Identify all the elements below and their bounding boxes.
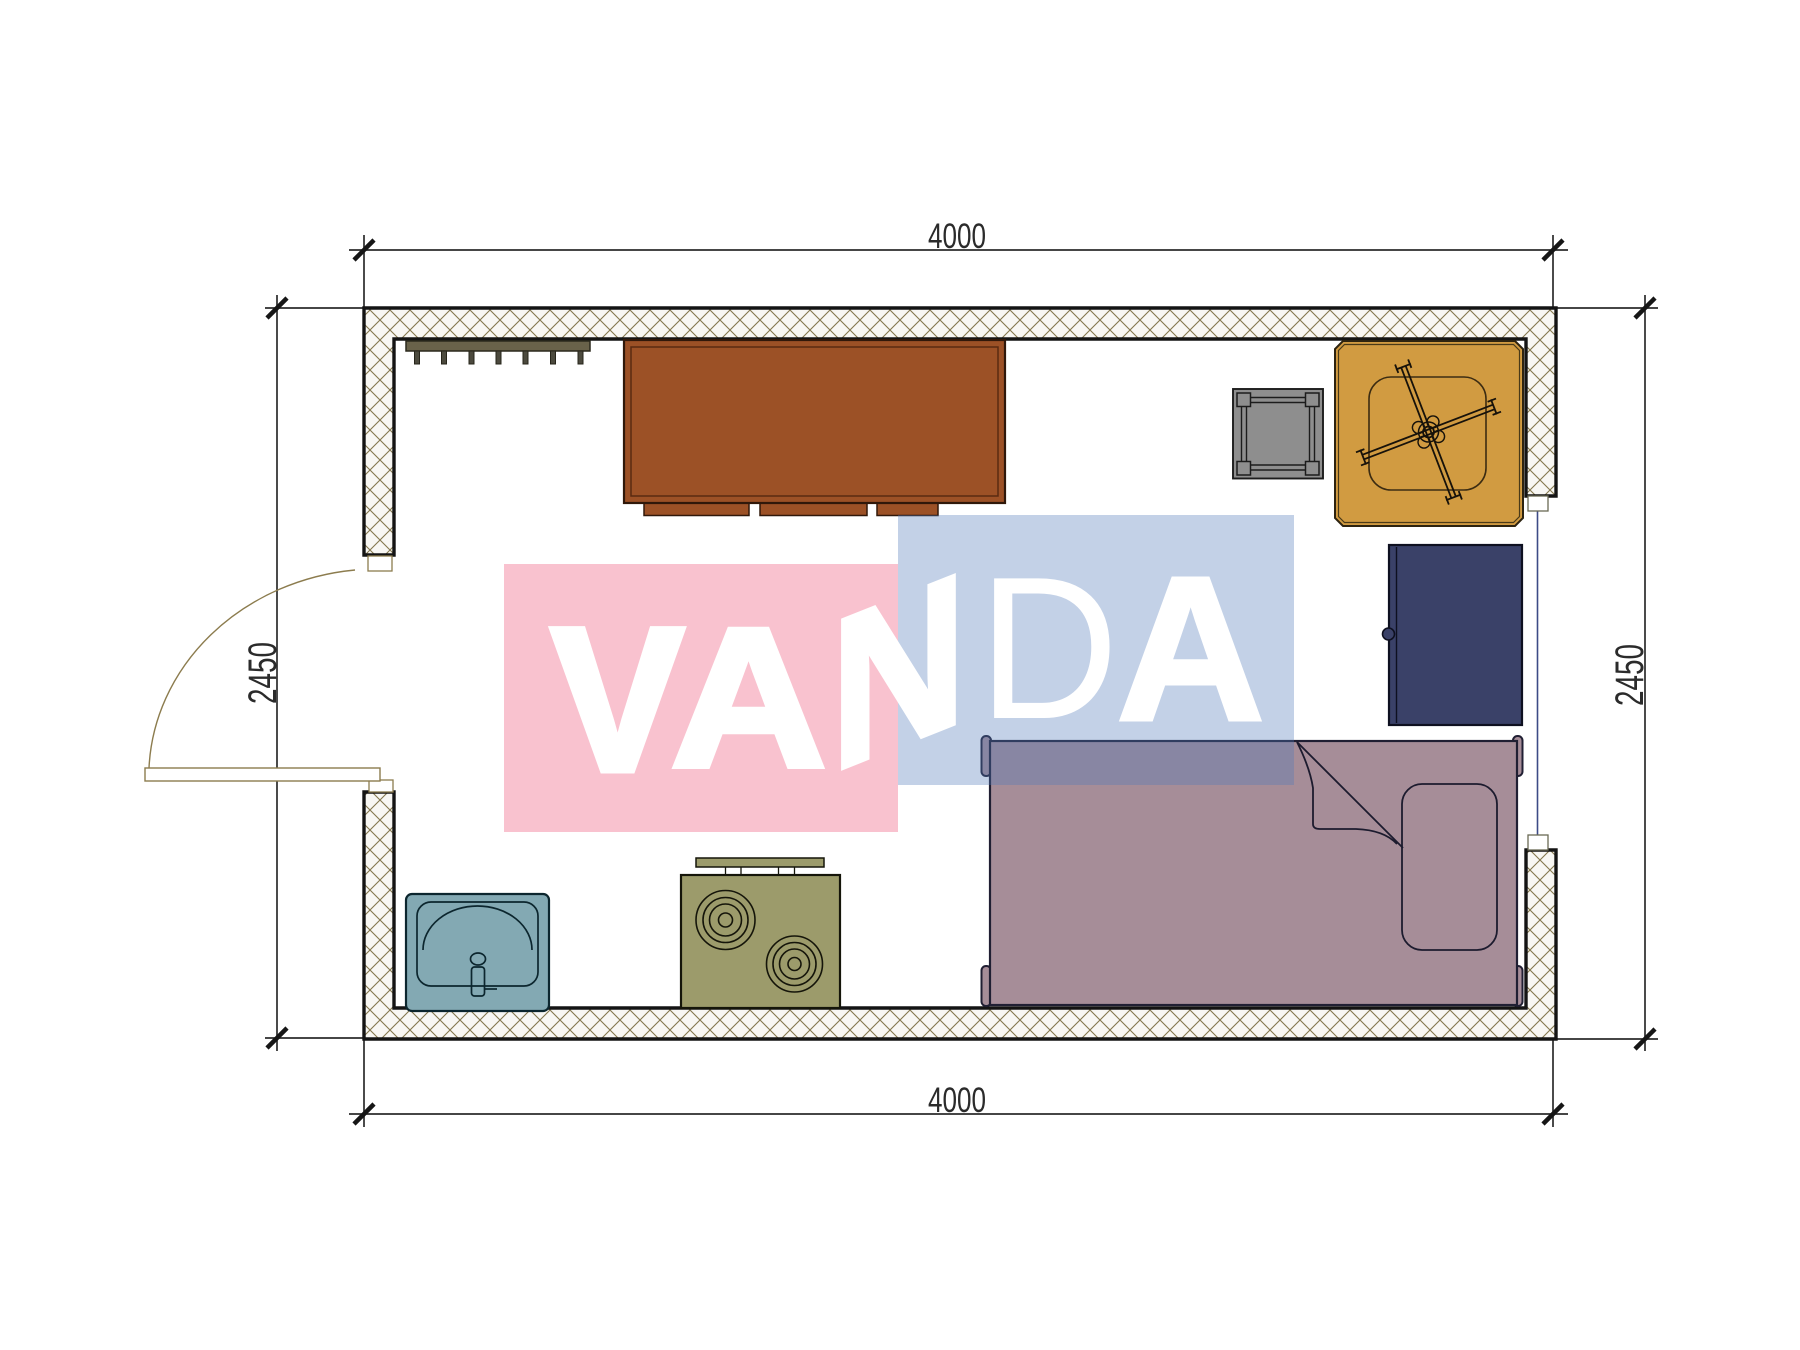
- svg-text:V: V: [551, 585, 683, 813]
- svg-text:4000: 4000: [928, 1081, 986, 1120]
- svg-text:2450: 2450: [241, 642, 285, 704]
- svg-text:D: D: [978, 535, 1119, 761]
- svg-text:A: A: [1117, 535, 1265, 764]
- svg-text:4000: 4000: [928, 217, 986, 256]
- svg-text:A: A: [671, 587, 826, 808]
- svg-text:2450: 2450: [1608, 644, 1652, 706]
